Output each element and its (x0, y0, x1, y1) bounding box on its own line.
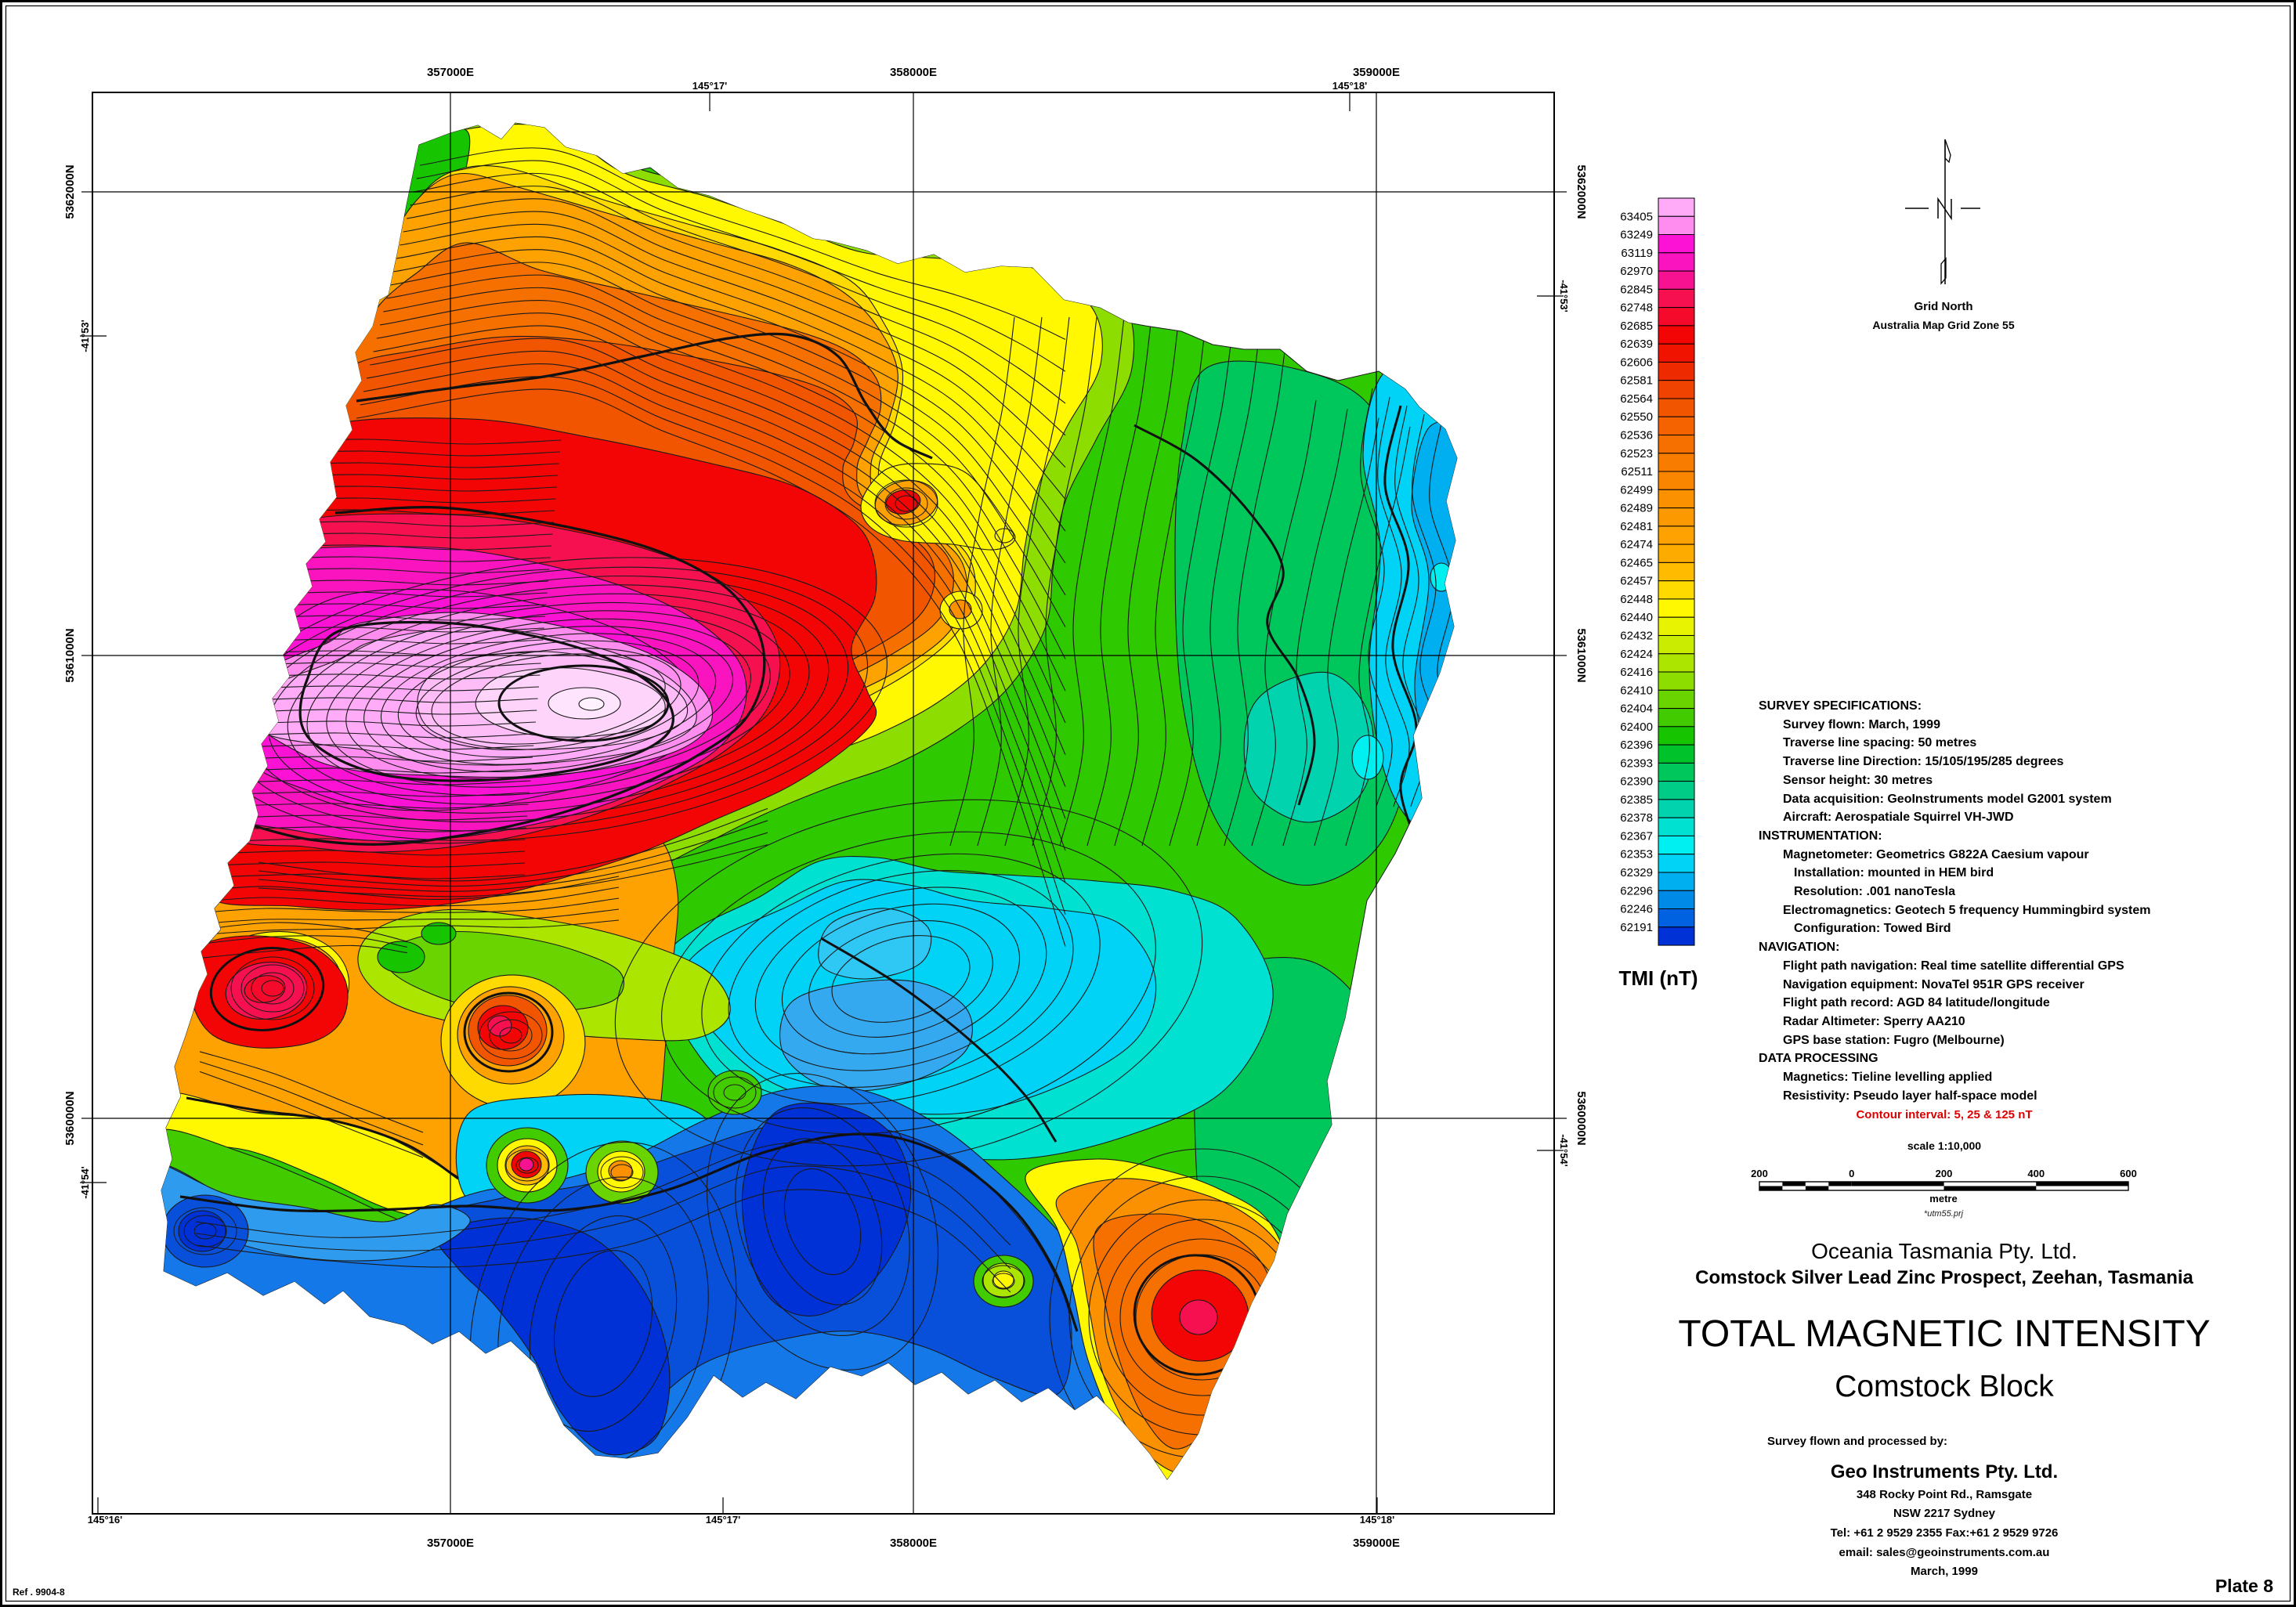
svg-text:Ref . 9904-8: Ref . 9904-8 (13, 1587, 65, 1598)
svg-text:400: 400 (2027, 1168, 2045, 1179)
svg-text:-41°53': -41°53' (79, 320, 91, 352)
svg-text:-41°54': -41°54' (1558, 1134, 1570, 1167)
svg-text:62404: 62404 (1620, 702, 1653, 716)
svg-text:63249: 63249 (1620, 229, 1653, 242)
svg-text:Traverse line spacing: 50 metr: Traverse line spacing: 50 metres (1783, 736, 1976, 749)
svg-text:62329: 62329 (1620, 866, 1653, 879)
svg-text:62440: 62440 (1620, 611, 1653, 624)
svg-text:Survey flown and processed by:: Survey flown and processed by: (1767, 1435, 1947, 1448)
svg-text:Plate 8: Plate 8 (2215, 1576, 2273, 1596)
svg-text:5362000N: 5362000N (63, 164, 77, 218)
svg-text:scale 1:10,000: scale 1:10,000 (1907, 1139, 1981, 1152)
svg-text:Survey flown: March, 1999: Survey flown: March, 1999 (1783, 718, 1940, 731)
svg-text:62246: 62246 (1620, 903, 1653, 916)
svg-text:Data acquisition: GeoInstrumen: Data acquisition: GeoInstruments model G… (1783, 793, 2112, 806)
svg-text:62523: 62523 (1620, 447, 1653, 460)
svg-text:Radar Altimeter: Sperry AA210: Radar Altimeter: Sperry AA210 (1783, 1015, 1965, 1028)
svg-text:62448: 62448 (1620, 593, 1653, 606)
svg-text:62465: 62465 (1620, 556, 1653, 569)
svg-text:358000E: 358000E (890, 66, 937, 79)
svg-text:5361000N: 5361000N (1575, 628, 1588, 682)
svg-text:Comstock Silver Lead Zinc Pros: Comstock Silver Lead Zinc Prospect, Zeeh… (1695, 1267, 2193, 1288)
svg-text:357000E: 357000E (427, 66, 474, 79)
svg-text:Resistivity: Pseudo layer half: Resistivity: Pseudo layer half-space mod… (1783, 1089, 2037, 1103)
svg-text:62432: 62432 (1620, 630, 1653, 643)
svg-text:62393: 62393 (1620, 757, 1653, 770)
svg-text:145°17': 145°17' (692, 80, 727, 92)
svg-text:Navigation equipment: NovaTel: Navigation equipment: NovaTel 951R GPS r… (1783, 978, 2084, 991)
svg-text:NSW 2217 Sydney: NSW 2217 Sydney (1893, 1507, 1996, 1520)
svg-text:62191: 62191 (1620, 921, 1653, 934)
svg-text:Geo Instruments Pty. Ltd.: Geo Instruments Pty. Ltd. (1831, 1461, 2058, 1482)
svg-text:5361000N: 5361000N (63, 628, 77, 682)
svg-text:Oceania Tasmania Pty. Ltd.: Oceania Tasmania Pty. Ltd. (1811, 1239, 2077, 1263)
svg-text:Australia Map Grid Zone 55: Australia Map Grid Zone 55 (1872, 319, 2014, 331)
svg-text:Aircraft: Aerospatiale Squirre: Aircraft: Aerospatiale Squirrel VH-JWD (1783, 811, 2014, 824)
svg-text:5362000N: 5362000N (1575, 164, 1588, 218)
svg-text:359000E: 359000E (1353, 1537, 1400, 1550)
svg-text:145°16': 145°16' (88, 1514, 122, 1526)
svg-text:Magnetics: Tieline levelling a: Magnetics: Tieline levelling applied (1783, 1071, 1992, 1084)
svg-text:358000E: 358000E (890, 1537, 937, 1550)
svg-text:348 Rocky Point Rd., Ramsgate: 348 Rocky Point Rd., Ramsgate (1857, 1488, 2032, 1501)
svg-text:62424: 62424 (1620, 648, 1653, 661)
svg-text:62536: 62536 (1620, 429, 1653, 442)
svg-text:Comstock Block: Comstock Block (1835, 1370, 2054, 1403)
svg-text:62685: 62685 (1620, 320, 1653, 333)
svg-text:62489: 62489 (1620, 502, 1653, 515)
svg-text:Flight path navigation: Real t: Flight path navigation: Real time satell… (1783, 959, 2124, 973)
svg-text:Electromagnetics: Geotech 5 fr: Electromagnetics: Geotech 5 frequency Hu… (1783, 904, 2150, 917)
svg-text:62353: 62353 (1620, 848, 1653, 861)
svg-text:Traverse line Direction: 15/10: Traverse line Direction: 15/105/195/285 … (1783, 755, 2064, 768)
svg-text:metre: metre (1929, 1193, 1957, 1204)
svg-text:INSTRUMENTATION:: INSTRUMENTATION: (1759, 829, 1882, 843)
svg-text:62400: 62400 (1620, 720, 1653, 734)
svg-text:62639: 62639 (1620, 338, 1653, 351)
svg-text:63405: 63405 (1620, 210, 1653, 223)
svg-text:62416: 62416 (1620, 666, 1653, 679)
svg-text:DATA PROCESSING: DATA PROCESSING (1759, 1052, 1878, 1065)
svg-text:62396: 62396 (1620, 738, 1653, 752)
svg-text:Flight path record: AGD 84 lat: Flight path record: AGD 84 latitude/long… (1783, 996, 2050, 1009)
svg-text:NAVIGATION:: NAVIGATION: (1759, 941, 1839, 954)
svg-text:Grid North: Grid North (1915, 300, 1973, 313)
svg-text:SURVEY SPECIFICATIONS:: SURVEY SPECIFICATIONS: (1759, 699, 1922, 713)
svg-text:-41°53': -41°53' (1558, 280, 1570, 312)
svg-text:62606: 62606 (1620, 356, 1653, 369)
svg-text:62385: 62385 (1620, 793, 1653, 807)
svg-text:62845: 62845 (1620, 283, 1653, 296)
svg-text:359000E: 359000E (1353, 66, 1400, 79)
svg-text:63119: 63119 (1621, 247, 1653, 260)
svg-text:Tel: +61 2 9529 2355 Fax:+61: Tel: +61 2 9529 2355 Fax:+61 2 9529 9726 (1831, 1526, 2059, 1540)
svg-text:200: 200 (1936, 1168, 1953, 1179)
svg-text:Sensor height: 30 metres: Sensor height: 30 metres (1783, 774, 1933, 787)
svg-text:Resolution: .001 nanoTesla: Resolution: .001 nanoTesla (1794, 885, 1955, 898)
svg-text:62564: 62564 (1620, 392, 1653, 406)
svg-text:62367: 62367 (1620, 829, 1653, 843)
svg-text:62511: 62511 (1621, 465, 1653, 478)
svg-text:62970: 62970 (1620, 265, 1653, 278)
svg-text:62296: 62296 (1620, 884, 1653, 897)
svg-text:62550: 62550 (1620, 410, 1653, 424)
svg-text:62457: 62457 (1620, 575, 1653, 588)
svg-text:62410: 62410 (1620, 684, 1653, 697)
svg-text:Configuration: Towed Bird: Configuration: Towed Bird (1794, 922, 1951, 935)
svg-text:62474: 62474 (1620, 538, 1653, 551)
svg-text:357000E: 357000E (427, 1537, 474, 1550)
svg-text:0: 0 (1849, 1168, 1854, 1179)
svg-text:62499: 62499 (1620, 483, 1653, 497)
svg-text:62390: 62390 (1620, 775, 1653, 789)
svg-text:145°18': 145°18' (1332, 80, 1367, 92)
svg-text:145°18': 145°18' (1360, 1514, 1394, 1526)
svg-text:62581: 62581 (1620, 374, 1653, 388)
svg-text:62481: 62481 (1620, 520, 1653, 533)
svg-text:62748: 62748 (1620, 302, 1653, 315)
svg-text:TOTAL MAGNETIC INTENSITY: TOTAL MAGNETIC INTENSITY (1678, 1313, 2210, 1355)
svg-text:GPS base station: Fugro (Melbo: GPS base station: Fugro (Melbourne) (1783, 1034, 2005, 1047)
svg-text:March, 1999: March, 1999 (1911, 1565, 1978, 1578)
svg-text:email: sales@geoinstruments.co: email: sales@geoinstruments.com.au (1839, 1546, 2050, 1559)
svg-text:200: 200 (1751, 1168, 1768, 1179)
svg-text:5360000N: 5360000N (1575, 1091, 1588, 1145)
svg-text:62378: 62378 (1620, 811, 1653, 825)
svg-text:Magnetometer: Geometrics G822A: Magnetometer: Geometrics G822A Caesium v… (1783, 848, 2089, 861)
svg-text:600: 600 (2120, 1168, 2137, 1179)
svg-text:Installation: mounted in HEM b: Installation: mounted in HEM bird (1794, 866, 1994, 879)
svg-text:145°17': 145°17' (706, 1514, 740, 1526)
svg-text:TMI (nT): TMI (nT) (1618, 966, 1698, 990)
svg-text:*utm55.prj: *utm55.prj (1924, 1209, 1964, 1219)
svg-text:5360000N: 5360000N (63, 1091, 77, 1145)
svg-text:Contour interval: 5, 25 & 125: Contour interval: 5, 25 & 125 nT (1856, 1108, 2032, 1121)
svg-text:-41°54': -41°54' (79, 1166, 91, 1199)
